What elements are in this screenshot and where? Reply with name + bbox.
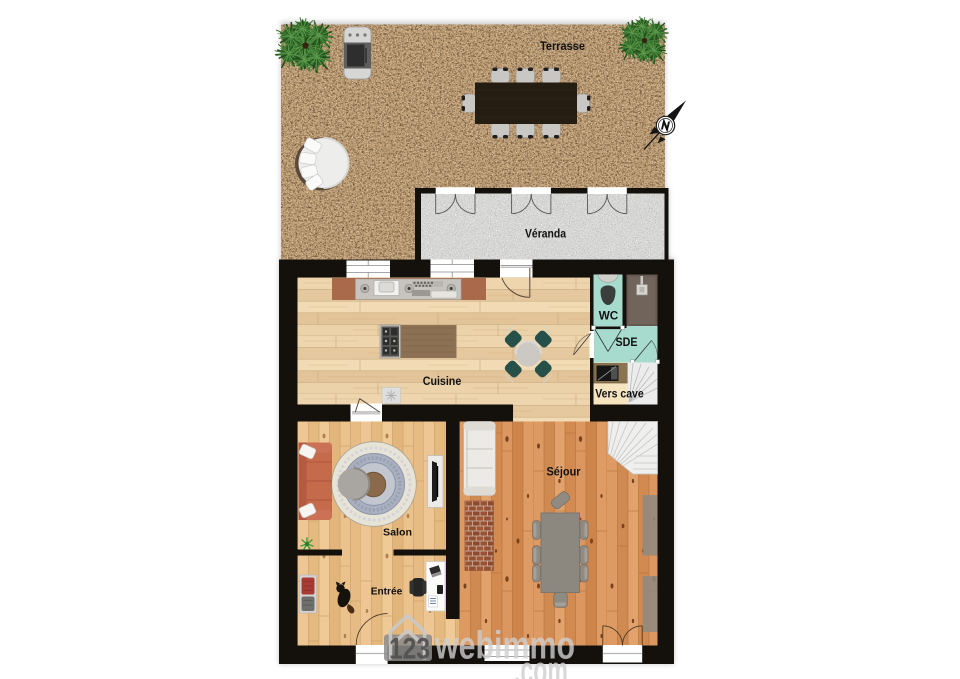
svg-text:WC: WC bbox=[599, 310, 619, 322]
svg-text:Cuisine: Cuisine bbox=[423, 376, 462, 388]
svg-text:123: 123 bbox=[389, 633, 430, 666]
svg-text:Séjour: Séjour bbox=[547, 466, 581, 478]
svg-text:Terrasse: Terrasse bbox=[540, 41, 585, 53]
svg-text:Véranda: Véranda bbox=[525, 228, 567, 240]
svg-text:.com: .com bbox=[514, 650, 568, 679]
svg-text:Entrée: Entrée bbox=[371, 586, 403, 598]
svg-text:Vers cave: Vers cave bbox=[595, 388, 644, 400]
svg-text:SDE: SDE bbox=[616, 337, 638, 349]
svg-text:Salon: Salon bbox=[383, 527, 412, 539]
